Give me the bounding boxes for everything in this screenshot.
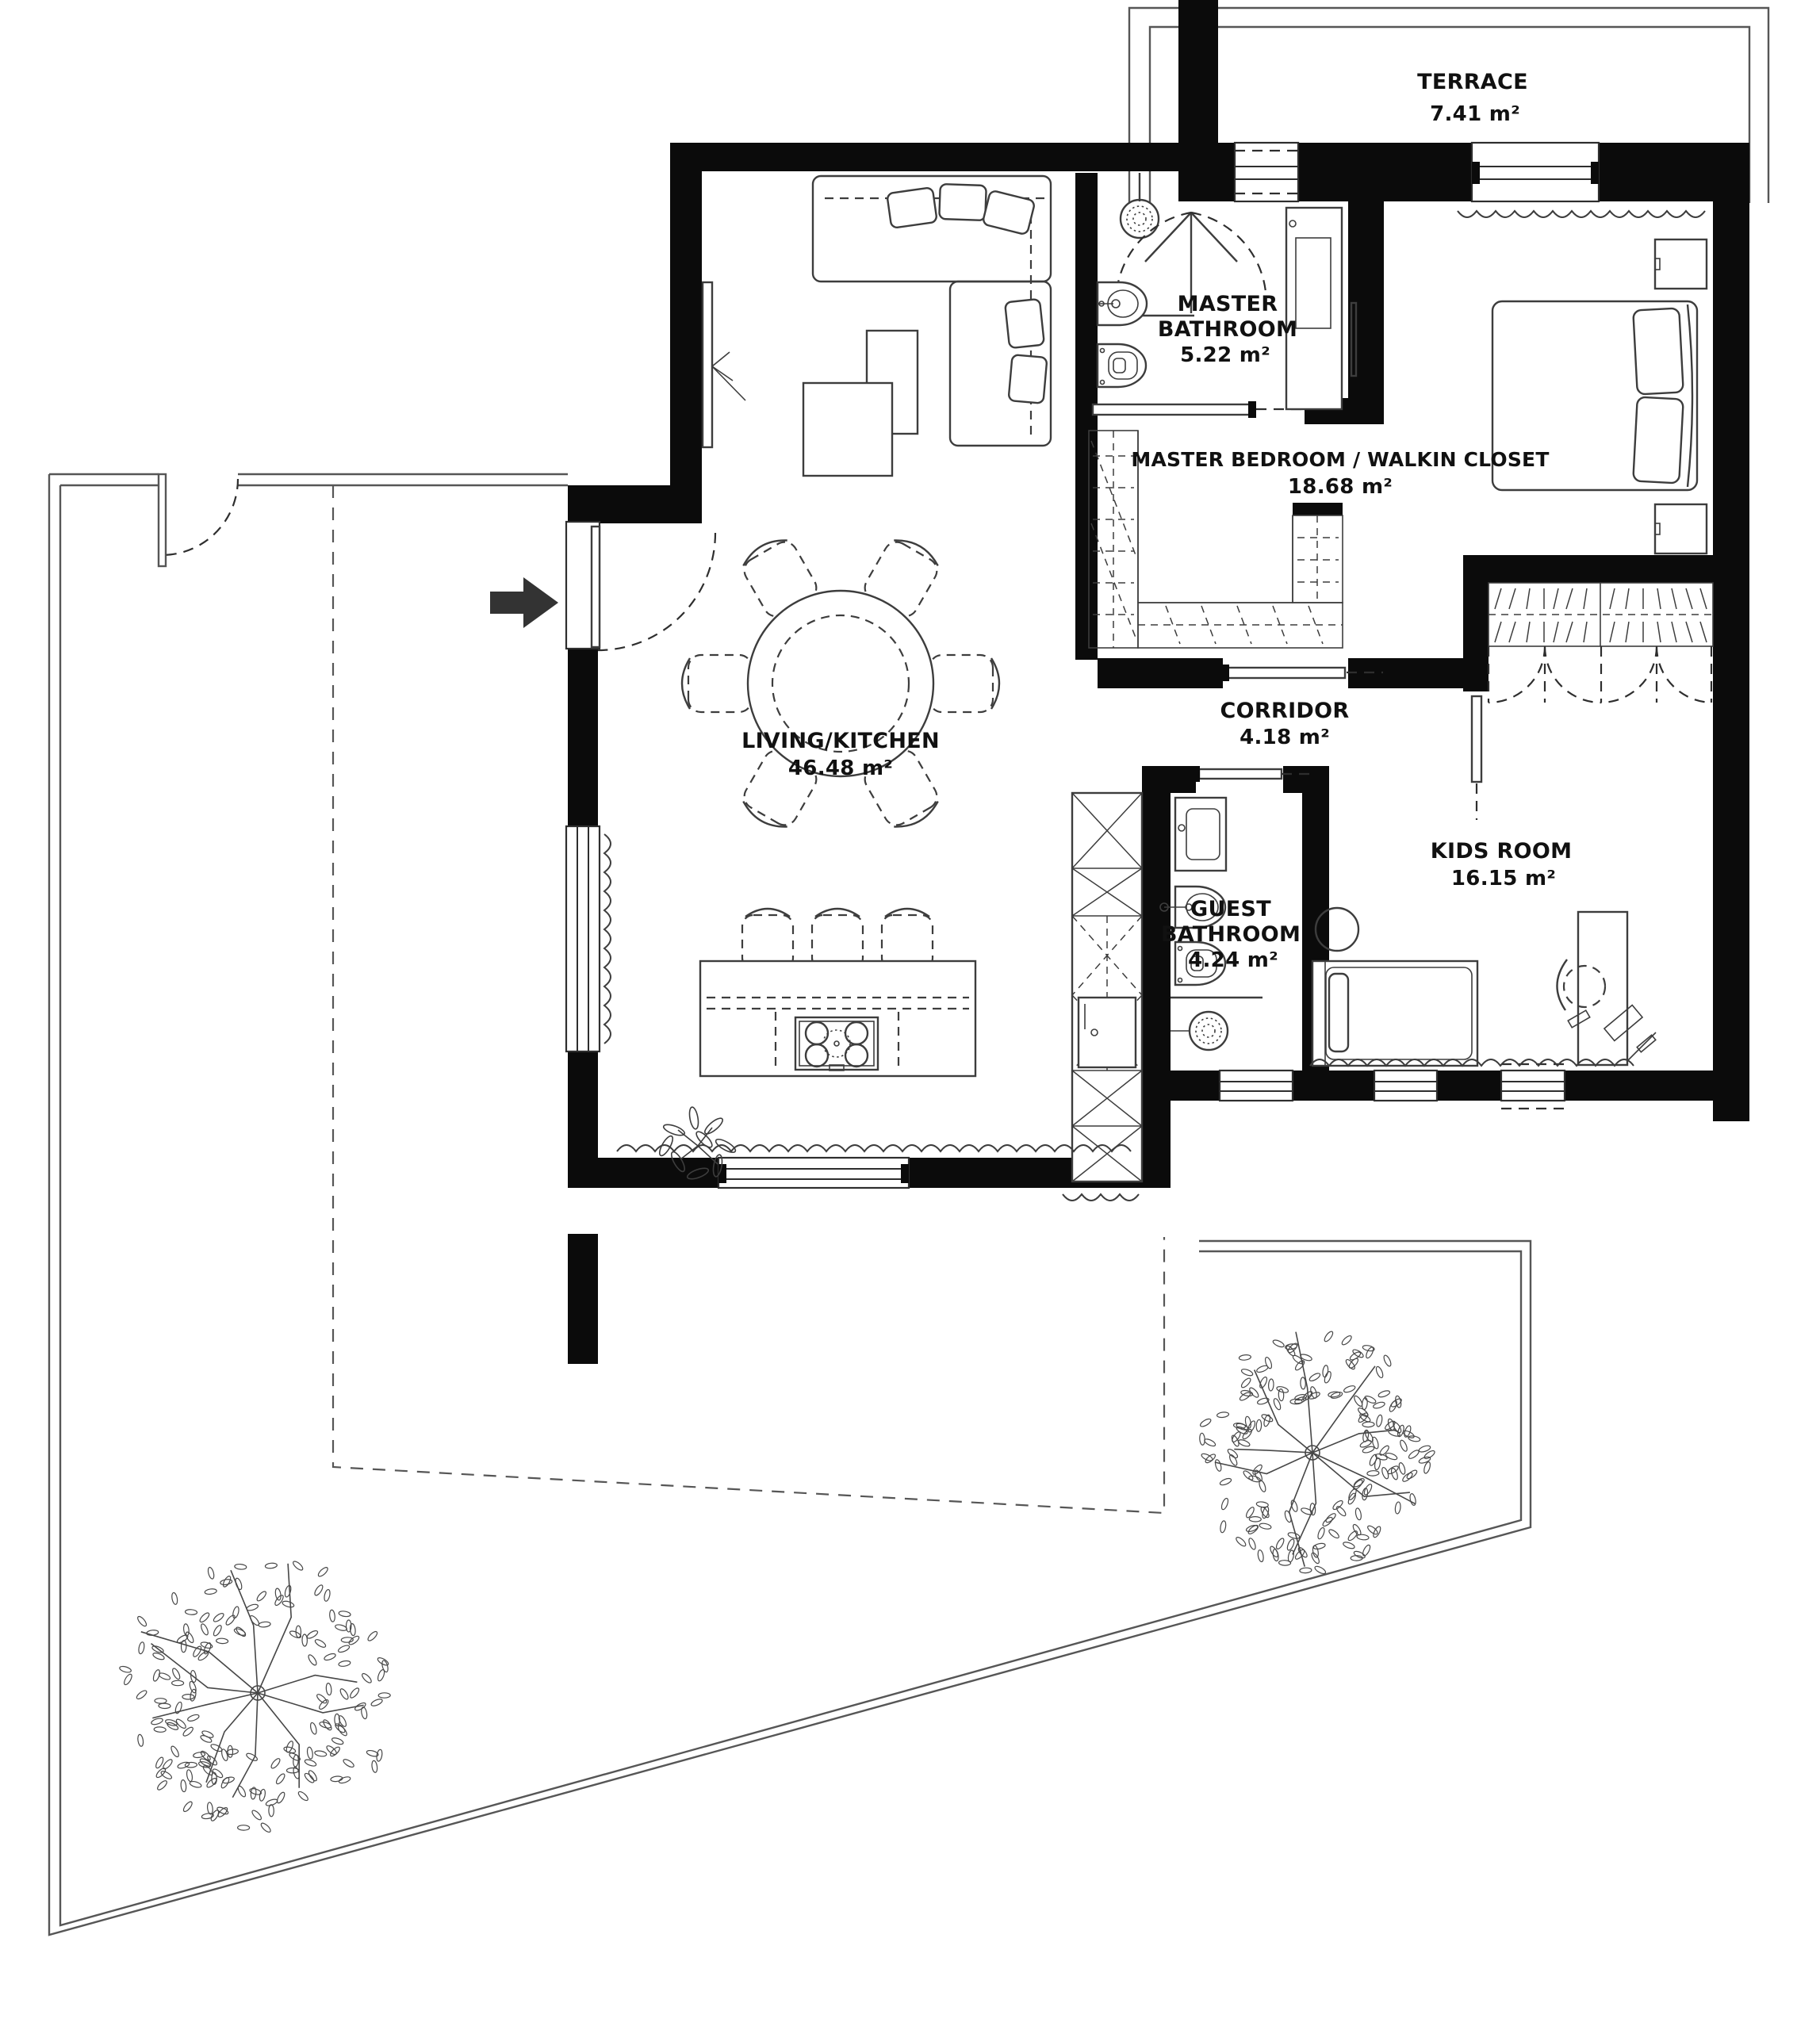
window-living-bottom — [718, 1158, 909, 1188]
curtain-living-left — [604, 834, 611, 1044]
tall-cabinets — [1072, 793, 1142, 1182]
pillow — [1633, 308, 1683, 395]
toilet-master — [1098, 344, 1146, 387]
curtain-kitchen-column — [1063, 1194, 1139, 1201]
pillow — [1329, 974, 1348, 1051]
kids-bed — [1312, 961, 1477, 1066]
room-area-guest-bathroom: 4.24 m² — [1188, 948, 1278, 972]
kids-wardrobe — [1489, 583, 1713, 703]
room-area-master-bathroom: 5.22 m² — [1180, 343, 1270, 367]
room-label-guest-bathroom-2: BATHROOM — [1161, 922, 1301, 947]
window-master-bathroom — [1235, 143, 1298, 201]
fridge — [1079, 998, 1136, 1067]
window-master-bedroom — [1472, 143, 1599, 201]
room-label-kids-room: KIDS ROOM — [1431, 839, 1573, 864]
bar-stool — [882, 909, 933, 969]
room-area-master-bedroom: 18.68 m² — [1288, 475, 1393, 499]
tree — [119, 1560, 390, 1833]
window-kids-room — [1374, 1071, 1437, 1101]
room-area-living-kitchen: 46.48 m² — [788, 756, 893, 780]
window-living-left — [566, 826, 600, 1051]
room-label-living-kitchen: LIVING/KITCHEN — [741, 729, 940, 753]
gate-post — [159, 474, 166, 566]
gate-swing-arc — [162, 479, 238, 555]
sliding-door-kids-room — [1472, 696, 1481, 820]
garden-door-kids — [1501, 1064, 1565, 1109]
shower-guest — [1171, 998, 1263, 1050]
nightstand — [1655, 239, 1707, 289]
window-guest-bathroom — [1220, 1071, 1293, 1101]
entrance-door — [566, 522, 715, 650]
dining-chair — [929, 655, 999, 712]
dining-table — [682, 532, 999, 835]
floor-plan-page: TERRACE 7.41 m² MASTER BATHROOM 5.22 m² … — [0, 0, 1820, 2030]
room-label-master-bedroom: MASTER BEDROOM / WALKIN CLOSET — [1131, 448, 1549, 471]
tv — [703, 282, 745, 447]
room-label-guest-bathroom-1: GUEST — [1190, 897, 1271, 921]
floor-plan-svg: TERRACE 7.41 m² MASTER BATHROOM 5.22 m² … — [0, 0, 1820, 2030]
coffee-table — [803, 331, 918, 476]
bar-stool — [812, 909, 863, 969]
room-area-terrace: 7.41 m² — [1430, 102, 1520, 126]
room-label-master-bathroom-1: MASTER — [1178, 292, 1278, 316]
dining-chair — [682, 655, 752, 712]
room-label-corridor: CORRIDOR — [1220, 699, 1350, 723]
nightstand — [1655, 504, 1707, 553]
bar-stool — [742, 909, 793, 969]
room-label-master-bathroom-2: BATHROOM — [1158, 317, 1297, 342]
sliding-door-bathroom — [1093, 401, 1308, 418]
sink-guest — [1175, 798, 1226, 871]
curtain-master-bedroom — [1458, 211, 1705, 217]
room-label-terrace: TERRACE — [1417, 70, 1528, 94]
room-area-kids-room: 16.15 m² — [1451, 867, 1556, 891]
pillow — [1633, 397, 1683, 484]
room-area-corridor: 4.18 m² — [1240, 726, 1330, 749]
tree — [1199, 1330, 1435, 1575]
kitchen-island — [700, 909, 975, 1076]
pillow — [887, 184, 1047, 404]
sink-master — [1098, 282, 1147, 325]
desk — [1578, 912, 1656, 1065]
entrance-arrow-icon — [490, 577, 558, 628]
vanity-master — [1286, 208, 1356, 409]
